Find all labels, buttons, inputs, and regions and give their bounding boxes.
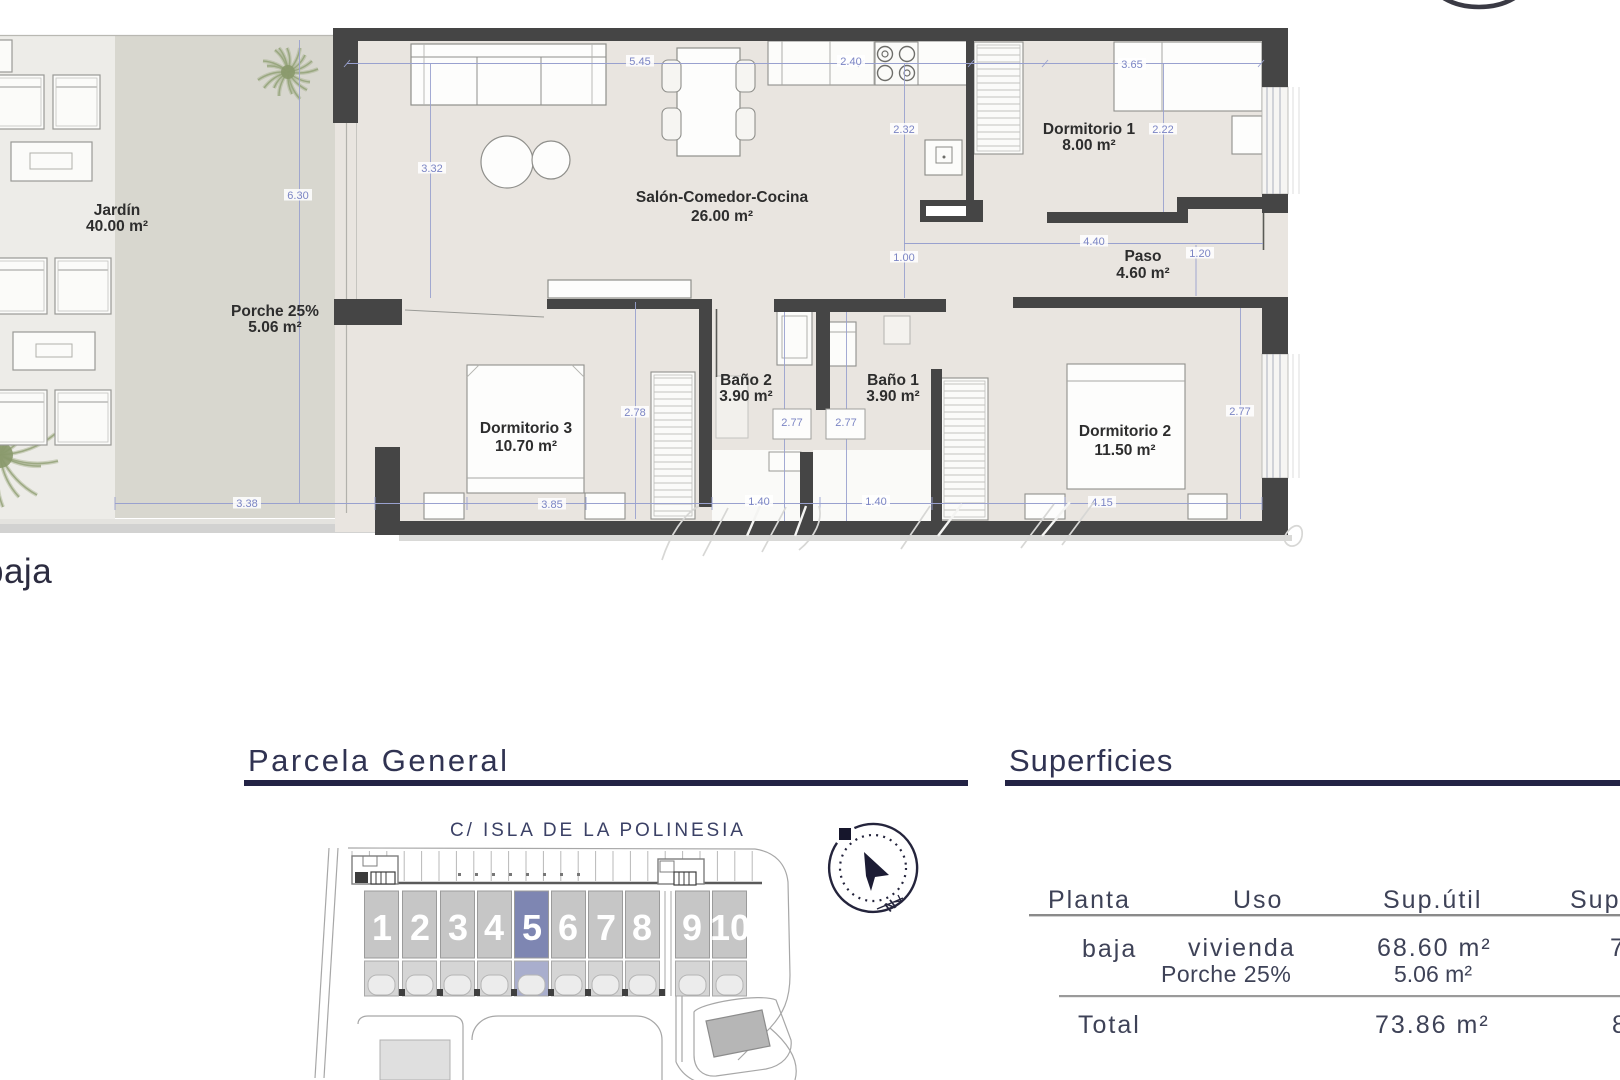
svg-text:5.06 m²: 5.06 m² [248,319,301,336]
svg-text:2.40: 2.40 [840,56,861,68]
svg-text:3.38: 3.38 [236,498,257,510]
svg-text:Baño 2: Baño 2 [720,372,772,389]
svg-text:4.60 m²: 4.60 m² [1116,265,1169,282]
svg-text:Total: Total [1078,1011,1141,1039]
svg-text:9: 9 [682,907,702,948]
svg-text:3.90 m²: 3.90 m² [866,388,919,405]
svg-text:3.65: 3.65 [1121,59,1142,71]
svg-text:3.85: 3.85 [541,499,562,511]
svg-text:Paso: Paso [1124,248,1161,265]
svg-text:2: 2 [410,907,430,948]
svg-text:8.00 m²: 8.00 m² [1062,137,1115,154]
svg-text:1.00: 1.00 [893,252,914,264]
svg-text:Dormitorio 1: Dormitorio 1 [1043,121,1136,138]
svg-text:6: 6 [558,907,578,948]
svg-text:8: 8 [1612,1011,1620,1039]
svg-text:Superficies: Superficies [1009,743,1173,778]
svg-text:5: 5 [522,907,542,948]
svg-text:6.30: 6.30 [287,190,308,202]
svg-text:1.20: 1.20 [1189,248,1210,260]
svg-text:Porche 25%: Porche 25% [1161,961,1291,987]
svg-text:7: 7 [1610,934,1620,962]
svg-text:Uso: Uso [1233,886,1283,914]
svg-text:1.40: 1.40 [865,496,886,508]
svg-text:Dormitorio 2: Dormitorio 2 [1079,423,1171,440]
svg-text:Planta: Planta [1048,886,1131,914]
svg-text:C/ ISLA DE LA POLINESIA: C/ ISLA DE LA POLINESIA [450,820,746,841]
svg-text:10: 10 [710,907,750,948]
svg-text:Sup: Sup [1570,886,1620,914]
svg-text:40.00 m²: 40.00 m² [86,218,148,235]
svg-text:2.22: 2.22 [1152,124,1173,136]
svg-text:26.00 m²: 26.00 m² [691,208,753,225]
svg-text:73.86 m²: 73.86 m² [1375,1011,1490,1039]
svg-text:Jardín: Jardín [94,202,141,219]
svg-text:10.70 m²: 10.70 m² [495,438,557,455]
svg-text:11.50 m²: 11.50 m² [1094,442,1155,459]
svg-text:3.32: 3.32 [421,163,442,175]
svg-text:baja: baja [0,552,52,591]
svg-text:7: 7 [596,907,616,948]
svg-text:baja: baja [1082,935,1137,963]
svg-text:68.60 m²: 68.60 m² [1377,934,1492,962]
svg-text:Salón-Comedor-Cocina: Salón-Comedor-Cocina [636,189,809,206]
svg-text:Parcela General: Parcela General [248,743,510,778]
svg-text:2.77: 2.77 [835,417,856,429]
svg-text:4: 4 [484,907,504,948]
svg-text:vivienda: vivienda [1188,934,1296,962]
svg-text:1: 1 [372,907,392,948]
svg-text:4.15: 4.15 [1091,497,1112,509]
svg-text:2.77: 2.77 [1229,406,1250,418]
svg-text:2.77: 2.77 [781,417,802,429]
svg-text:2.32: 2.32 [893,124,914,136]
svg-text:3: 3 [448,907,468,948]
svg-text:3.90 m²: 3.90 m² [719,388,772,405]
svg-text:4.40: 4.40 [1083,236,1104,248]
svg-text:2.78: 2.78 [624,407,645,419]
svg-text:5.06 m²: 5.06 m² [1394,961,1472,987]
svg-text:Baño 1: Baño 1 [867,372,919,389]
svg-text:Porche 25%: Porche 25% [231,303,319,320]
svg-text:Sup.útil: Sup.útil [1383,886,1482,914]
svg-text:5.45: 5.45 [629,56,650,68]
svg-text:8: 8 [632,907,652,948]
svg-text:Dormitorio 3: Dormitorio 3 [480,420,573,437]
